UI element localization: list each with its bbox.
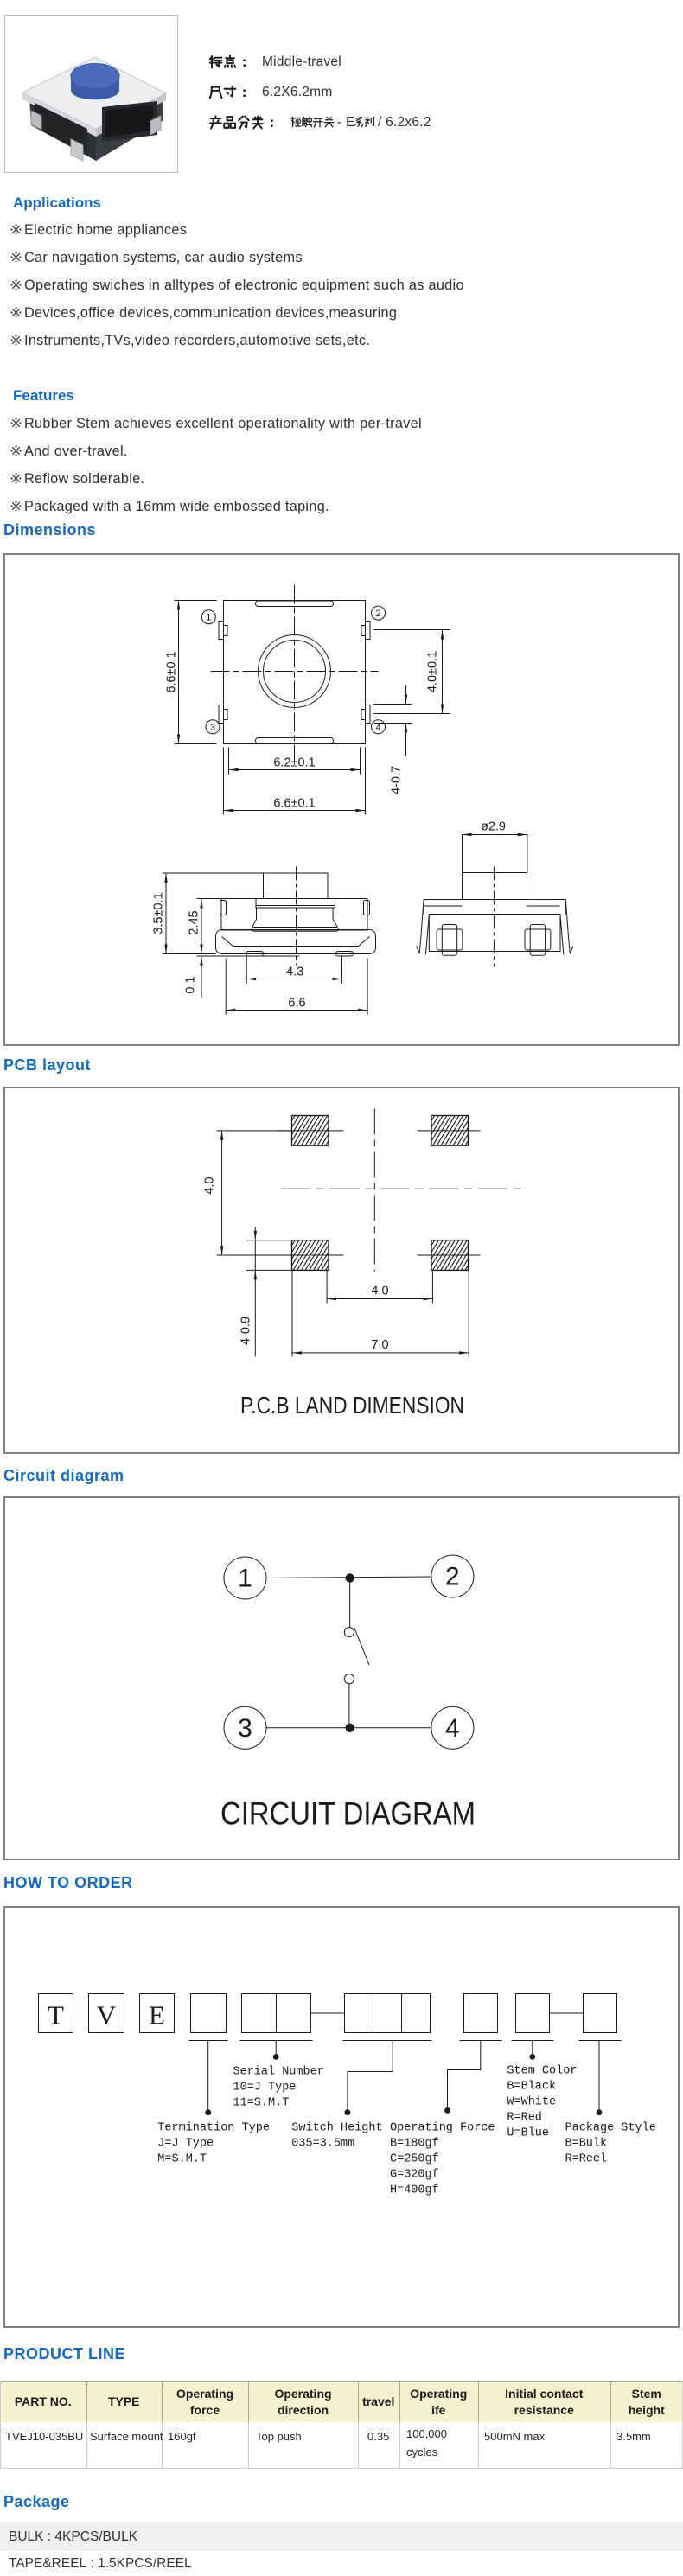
svg-text:R=Red: R=Red	[507, 2112, 542, 2125]
svg-text:ø2.9: ø2.9	[481, 820, 506, 834]
svg-text:Operating Force: Operating Force	[390, 2122, 495, 2135]
svg-text:2: 2	[375, 609, 380, 619]
svg-text:E: E	[149, 2000, 165, 2031]
svg-text:R=Reel: R=Reel	[565, 2153, 608, 2166]
svg-text:6.2±0.1: 6.2±0.1	[273, 756, 315, 770]
svg-text:4-0.9: 4-0.9	[239, 1317, 253, 1345]
svg-text:4.0: 4.0	[371, 1285, 388, 1298]
svg-text:B=Black: B=Black	[507, 2081, 556, 2094]
svg-text:6.6±0.1: 6.6±0.1	[273, 797, 315, 811]
svg-text:P.C.B LAND DIMENSION: P.C.B LAND DIMENSION	[240, 1392, 464, 1419]
svg-text:1: 1	[206, 613, 211, 623]
svg-text:H=400gf: H=400gf	[390, 2184, 439, 2197]
svg-text:U=Blue: U=Blue	[507, 2127, 549, 2140]
svg-text:035=3.5mm: 035=3.5mm	[291, 2138, 354, 2151]
svg-text:B=180gf: B=180gf	[390, 2138, 439, 2151]
svg-text:4.3: 4.3	[286, 966, 303, 979]
svg-text:V: V	[97, 2000, 117, 2031]
svg-text:7.0: 7.0	[371, 1338, 388, 1352]
svg-text:G=320gf: G=320gf	[390, 2169, 439, 2182]
svg-text:3: 3	[210, 723, 215, 733]
svg-text:T: T	[48, 2000, 64, 2031]
svg-text:2: 2	[445, 1563, 460, 1591]
svg-text:3.5±0.1: 3.5±0.1	[152, 892, 166, 934]
svg-text:Switch Height: Switch Height	[291, 2122, 382, 2135]
svg-text:4: 4	[445, 1714, 460, 1743]
svg-text:1: 1	[238, 1565, 252, 1593]
svg-text:C=250gf: C=250gf	[390, 2153, 439, 2166]
svg-text:Stem Color: Stem Color	[507, 2065, 577, 2078]
svg-text:2.45: 2.45	[188, 910, 201, 934]
svg-text:10=J Type: 10=J Type	[233, 2082, 297, 2095]
svg-text:B=Bulk: B=Bulk	[565, 2138, 608, 2151]
svg-text:Serial Number: Serial Number	[233, 2066, 324, 2079]
svg-text:CIRCUIT DIAGRAM: CIRCUIT DIAGRAM	[220, 1796, 476, 1832]
svg-text:11=S.M.T: 11=S.M.T	[233, 2097, 290, 2110]
svg-text:W=White: W=White	[507, 2096, 556, 2109]
svg-text:M=S.M.T: M=S.M.T	[157, 2153, 207, 2166]
svg-text:Package Style: Package Style	[565, 2122, 656, 2135]
svg-text:Termination Type: Termination Type	[157, 2122, 270, 2135]
svg-text:4: 4	[375, 723, 380, 733]
svg-text:6.6: 6.6	[288, 997, 305, 1011]
svg-text:4-0.7: 4-0.7	[390, 766, 404, 794]
svg-text:3: 3	[238, 1714, 252, 1743]
svg-text:6.6±0.1: 6.6±0.1	[165, 651, 179, 692]
svg-text:J=J Type: J=J Type	[157, 2138, 214, 2151]
svg-text:4.0: 4.0	[203, 1176, 217, 1194]
svg-text:0.1: 0.1	[184, 976, 198, 993]
svg-text:4.0±0.1: 4.0±0.1	[426, 651, 440, 692]
